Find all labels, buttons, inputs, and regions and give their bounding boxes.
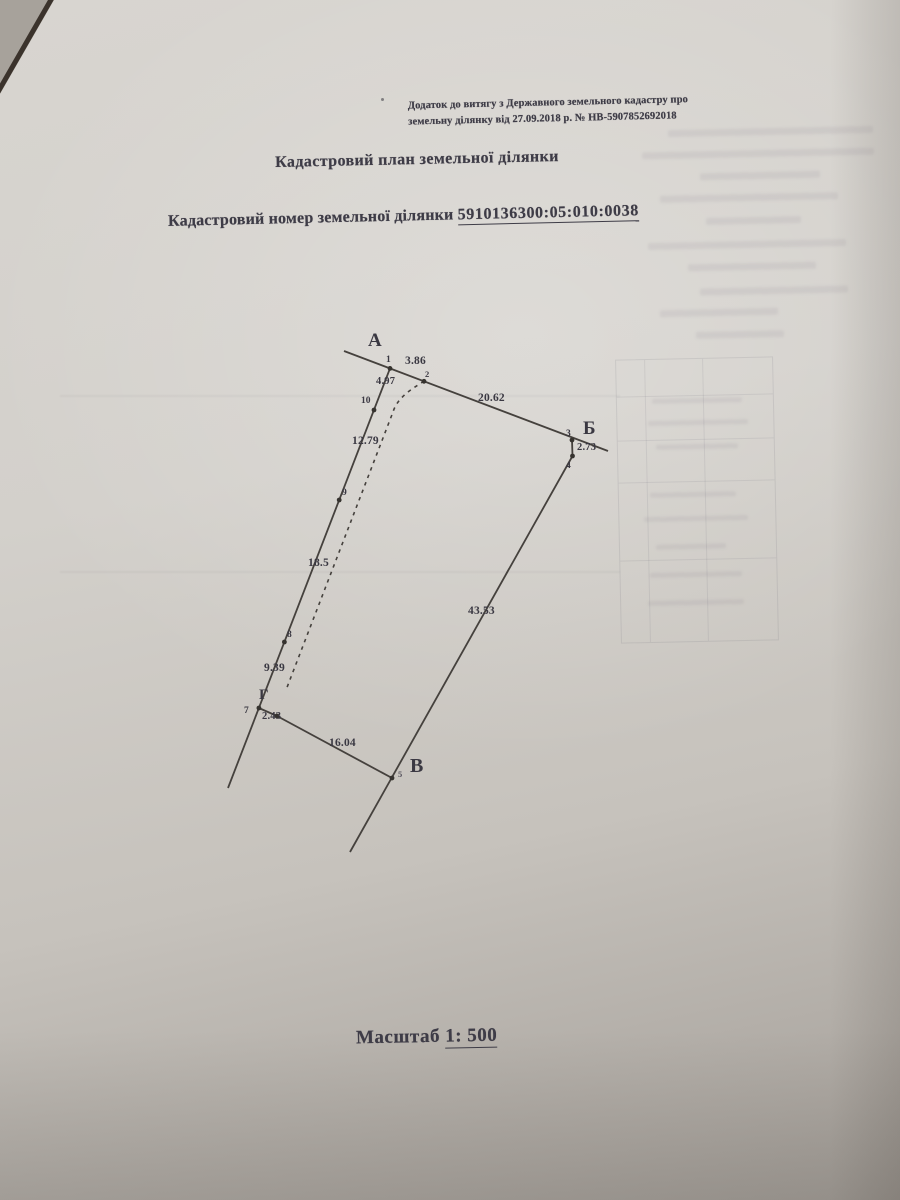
boundary-segment-3-4 [572, 440, 573, 456]
length-10-9: 12.79 [352, 435, 379, 447]
scale-caption: Масштаб 1: 500 [356, 1025, 498, 1050]
point-5-dot [390, 776, 395, 781]
length-8-7: 9.39 [264, 662, 285, 674]
point-10-dot [372, 408, 377, 413]
point-4-dot [570, 454, 575, 459]
length-6-5: 16.04 [329, 737, 356, 749]
inner-dashed-boundary [286, 381, 424, 690]
point-10-label: 10 [361, 396, 371, 406]
point-8-dot [282, 640, 287, 645]
length-1-2: 3.86 [405, 355, 426, 367]
vertex-label-g: Г [259, 687, 269, 703]
point-5-label: 5 [398, 769, 402, 779]
vertex-label-b: Б [583, 418, 596, 439]
point-4-label: 4 [566, 461, 571, 471]
length-4-5: 43.53 [468, 605, 495, 617]
point-2-dot [422, 379, 427, 384]
point-1-dot [388, 366, 393, 371]
length-7-6: 2.43 [262, 711, 281, 722]
point-1-label: 1 [386, 355, 391, 365]
cadastral-plan-figure: А Б В Г 1 2 3 4 5 7 8 9 10 3.86 20.62 2.… [0, 0, 900, 1200]
point-8-label: 8 [287, 630, 292, 640]
point-9-label: 9 [342, 488, 347, 498]
vertex-label-a: А [368, 330, 382, 351]
boundary-line-b-v [350, 456, 573, 852]
vertex-label-v: В [410, 755, 423, 777]
length-2-3: 20.62 [478, 392, 505, 404]
boundary-line-left [228, 368, 390, 788]
point-7-dot [257, 706, 262, 711]
survey-points [257, 366, 575, 780]
length-9-8: 18.5 [308, 557, 329, 569]
point-2-label: 2 [425, 369, 429, 379]
point-3-label: 3 [566, 429, 571, 439]
scale-value: 1: 500 [445, 1025, 498, 1049]
length-1-10: 4.97 [376, 376, 395, 387]
point-7-label: 7 [244, 706, 249, 716]
length-3-4: 2.73 [577, 442, 596, 453]
scale-label: Масштаб [356, 1026, 440, 1049]
point-9-dot [337, 498, 342, 503]
photographed-document: Додаток до витягу з Державного земельног… [0, 0, 900, 1200]
